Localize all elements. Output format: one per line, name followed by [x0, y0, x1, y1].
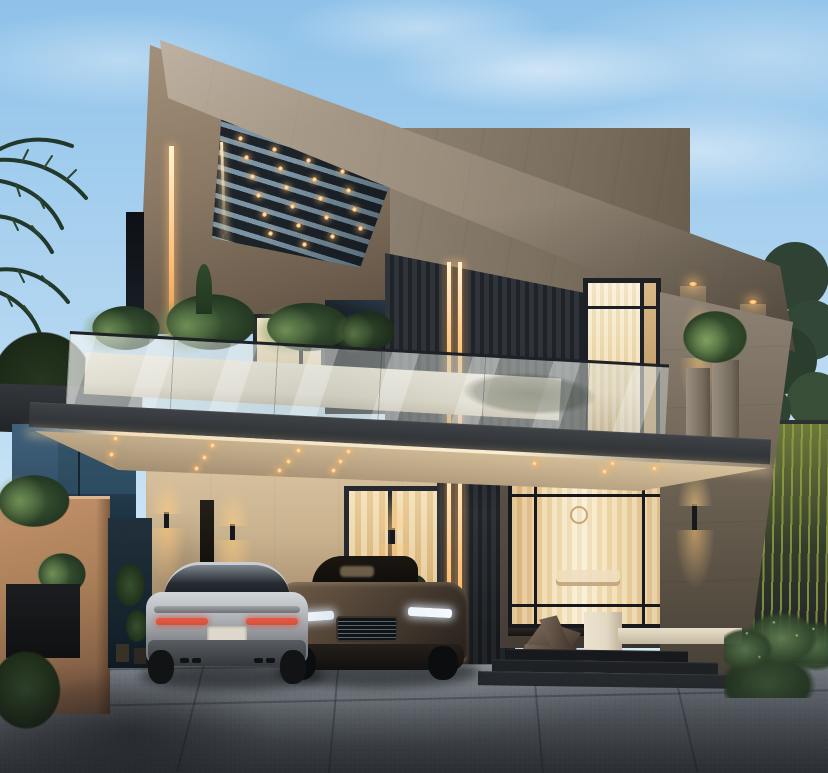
- pergola-downlight: [290, 204, 295, 209]
- pier-sconce-lower: [692, 504, 697, 530]
- soffit-downlight: [194, 466, 199, 471]
- soffit-downlight: [610, 461, 615, 466]
- window-mullion: [512, 494, 666, 497]
- pergola-downlight: [306, 158, 311, 163]
- balcony-cypress: [196, 264, 212, 314]
- soffit-downlight: [277, 468, 282, 473]
- pergola-downlight: [268, 231, 273, 236]
- tail-light-right: [246, 618, 298, 625]
- pergola-downlight: [296, 223, 301, 228]
- balcony-pot: [686, 368, 710, 438]
- roof-downlight: [688, 281, 698, 287]
- front-grille: [336, 616, 398, 642]
- pergola-downlight: [272, 147, 277, 152]
- soffit-downlight: [296, 448, 301, 453]
- pergola-downlight: [244, 155, 249, 160]
- soffit-downlight: [331, 468, 336, 473]
- pergola-downlight: [238, 136, 243, 141]
- wall-sconce: [164, 512, 169, 528]
- wall-sconce: [230, 524, 235, 540]
- interior-sofa: [556, 570, 620, 586]
- soffit-downlight: [532, 461, 537, 466]
- soffit-downlight: [202, 455, 207, 460]
- living-room-window: [508, 470, 670, 628]
- soffit-downlight: [338, 459, 343, 464]
- pergola-downlight: [284, 185, 289, 190]
- dark-sedan-interior-glow: [340, 566, 374, 577]
- pergola-downlight: [324, 215, 329, 220]
- wall-sconce: [390, 528, 395, 544]
- bottom-vignette: [0, 663, 828, 773]
- pergola-downlight: [250, 174, 255, 179]
- wall-top-plants: [0, 466, 82, 536]
- upper-right-window-transom: [588, 306, 656, 309]
- balcony-pot-plant: [672, 302, 758, 372]
- pergola-downlight: [352, 207, 357, 212]
- pergola-downlight: [318, 196, 323, 201]
- window-mullion: [512, 604, 666, 607]
- house-exterior-scene: [0, 0, 828, 773]
- pergola-downlight: [358, 226, 363, 231]
- soffit-downlight: [286, 459, 291, 464]
- pergola-downlight: [302, 242, 307, 247]
- interior-pendant-lamp: [570, 506, 588, 524]
- tail-light-left: [156, 618, 208, 625]
- rear-spoiler: [154, 606, 300, 613]
- pergola-downlight: [278, 166, 283, 171]
- soffit-downlight: [109, 452, 114, 457]
- pergola-downlight: [262, 212, 267, 217]
- balcony-pot: [712, 360, 739, 440]
- soffit-downlight: [210, 443, 215, 448]
- soffit-downlight: [652, 466, 657, 471]
- soffit-downlight: [346, 449, 351, 454]
- pergola-downlight: [330, 234, 335, 239]
- pergola-downlight: [256, 193, 261, 198]
- soffit-downlight: [113, 436, 118, 441]
- pergola-downlight: [340, 169, 345, 174]
- pergola-downlight: [346, 188, 351, 193]
- pergola-downlight: [312, 177, 317, 182]
- soffit-downlight: [602, 469, 607, 474]
